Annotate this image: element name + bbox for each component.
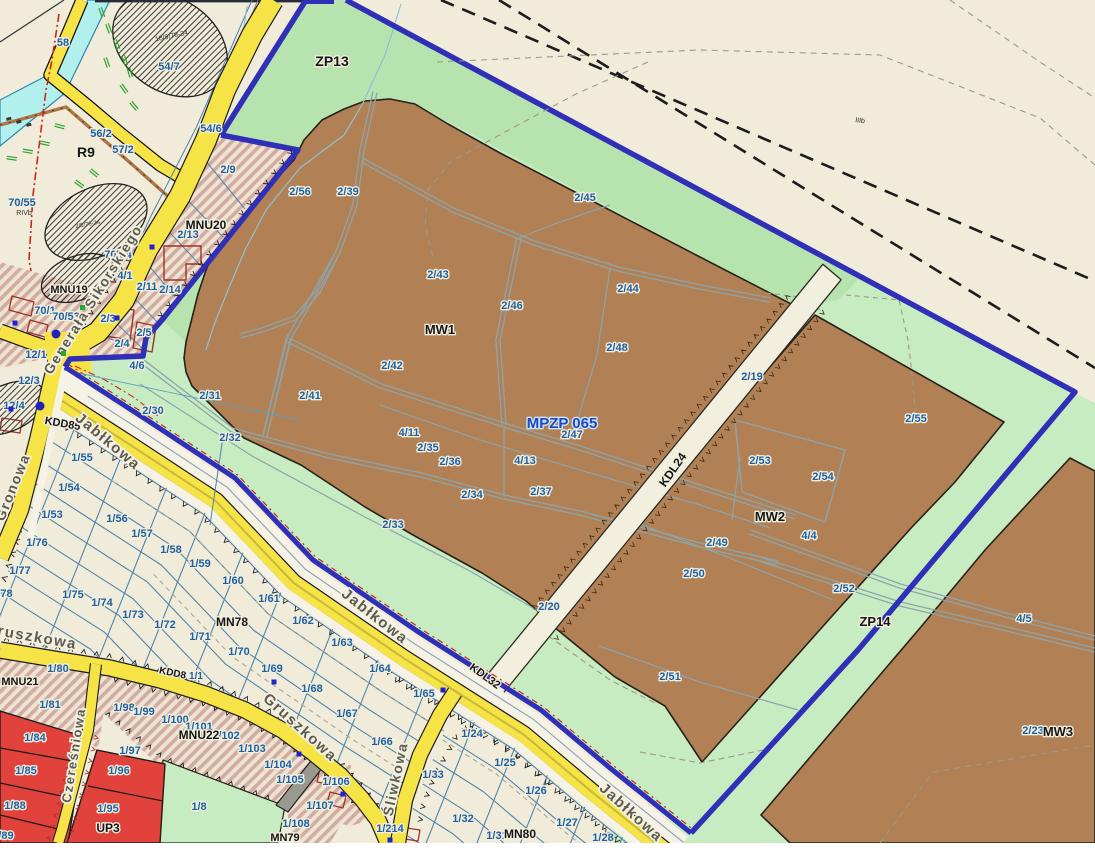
svg-text:4/13: 4/13 xyxy=(514,455,535,467)
svg-text:2/30: 2/30 xyxy=(142,405,163,417)
svg-text:1/105: 1/105 xyxy=(276,774,304,786)
svg-text:2/39: 2/39 xyxy=(337,186,358,198)
svg-text:1/106: 1/106 xyxy=(322,776,350,788)
svg-text:1/104: 1/104 xyxy=(264,759,292,771)
svg-text:2/44: 2/44 xyxy=(617,283,639,295)
svg-text:1/88: 1/88 xyxy=(4,800,25,812)
svg-text:1/69: 1/69 xyxy=(261,663,282,675)
svg-text:1/214: 1/214 xyxy=(376,823,404,835)
svg-text:2/33: 2/33 xyxy=(382,519,403,531)
svg-text:12/4: 12/4 xyxy=(3,400,25,412)
svg-text:58: 58 xyxy=(57,37,69,49)
svg-text:2/3: 2/3 xyxy=(100,313,115,325)
svg-text:70/55: 70/55 xyxy=(8,197,36,209)
svg-text:1/25: 1/25 xyxy=(494,757,515,769)
svg-text:1/97: 1/97 xyxy=(119,745,140,757)
svg-text:1/67: 1/67 xyxy=(336,708,357,720)
svg-text:12/3: 12/3 xyxy=(18,375,39,387)
svg-text:2/48: 2/48 xyxy=(606,342,627,354)
svg-text:12/1: 12/1 xyxy=(25,349,46,361)
svg-text:4/1: 4/1 xyxy=(117,270,132,282)
svg-text:UP3: UP3 xyxy=(96,821,120,835)
svg-text:1/84: 1/84 xyxy=(24,732,46,744)
svg-text:1/56: 1/56 xyxy=(106,513,127,525)
svg-text:1/59: 1/59 xyxy=(189,558,210,570)
svg-text:1/95: 1/95 xyxy=(97,803,118,815)
svg-text:2/53: 2/53 xyxy=(749,455,770,467)
svg-text:IIIb: IIIb xyxy=(855,117,866,125)
svg-text:1/70: 1/70 xyxy=(228,646,249,658)
svg-text:2/56: 2/56 xyxy=(289,186,310,198)
svg-text:1/96: 1/96 xyxy=(108,765,129,777)
svg-text:2/55: 2/55 xyxy=(905,413,926,425)
svg-text:1/68: 1/68 xyxy=(301,683,322,695)
svg-text:4/11: 4/11 xyxy=(399,427,420,439)
svg-text:2/50: 2/50 xyxy=(683,568,704,580)
svg-text:4/6: 4/6 xyxy=(129,360,144,372)
svg-text:2/51: 2/51 xyxy=(659,671,680,683)
svg-text:1/73: 1/73 xyxy=(122,609,143,621)
svg-text:2/52: 2/52 xyxy=(833,583,854,595)
svg-text:2/11: 2/11 xyxy=(137,281,158,293)
svg-text:2/36: 2/36 xyxy=(439,456,460,468)
svg-text:1/64: 1/64 xyxy=(369,663,391,675)
svg-text:1/57: 1/57 xyxy=(131,528,152,540)
svg-text:2/5: 2/5 xyxy=(136,327,151,339)
svg-text:2/9: 2/9 xyxy=(220,164,235,176)
svg-text:1/99: 1/99 xyxy=(133,706,154,718)
svg-text:MNU21: MNU21 xyxy=(1,676,38,688)
svg-text:2/20: 2/20 xyxy=(538,601,559,613)
svg-text:1/98: 1/98 xyxy=(113,702,134,714)
svg-text:ZP14: ZP14 xyxy=(859,614,891,629)
svg-text:1/24: 1/24 xyxy=(461,728,483,740)
svg-text:1/65: 1/65 xyxy=(413,688,434,700)
svg-text:2/49: 2/49 xyxy=(706,537,727,549)
svg-text:1/77: 1/77 xyxy=(9,565,30,577)
svg-text:4/5: 4/5 xyxy=(1016,613,1031,625)
svg-text:MW2: MW2 xyxy=(755,509,785,524)
svg-text:1/8: 1/8 xyxy=(191,801,206,813)
svg-text:1/66: 1/66 xyxy=(371,736,392,748)
svg-text:1/108: 1/108 xyxy=(282,818,310,830)
svg-text:2/32: 2/32 xyxy=(219,432,240,444)
svg-text:1/72: 1/72 xyxy=(154,619,175,631)
svg-text:1/71: 1/71 xyxy=(189,631,210,643)
svg-text:2/23: 2/23 xyxy=(1022,725,1043,737)
svg-text:1/26: 1/26 xyxy=(525,785,546,797)
svg-text:1/80: 1/80 xyxy=(47,663,68,675)
svg-text:2/31: 2/31 xyxy=(199,390,220,402)
svg-text:57/2: 57/2 xyxy=(112,144,133,156)
svg-text:1/1: 1/1 xyxy=(189,671,203,682)
svg-text:1/85: 1/85 xyxy=(15,765,36,777)
svg-text:56/2: 56/2 xyxy=(90,128,111,140)
svg-text:1/61: 1/61 xyxy=(258,593,279,605)
svg-text:2/35: 2/35 xyxy=(417,442,438,454)
svg-text:MNU19: MNU19 xyxy=(50,284,87,296)
svg-text:1/58: 1/58 xyxy=(160,544,181,556)
svg-text:/78: /78 xyxy=(0,588,13,600)
svg-text:2/43: 2/43 xyxy=(427,269,448,281)
svg-text:1/107: 1/107 xyxy=(306,800,334,812)
svg-text:2/42: 2/42 xyxy=(381,360,402,372)
svg-text:1/54: 1/54 xyxy=(58,482,80,494)
svg-text:1/33: 1/33 xyxy=(422,769,443,781)
svg-text:MPZP 065: MPZP 065 xyxy=(527,415,598,432)
svg-text:1/60: 1/60 xyxy=(222,575,243,587)
svg-text:54/7: 54/7 xyxy=(158,61,179,73)
svg-text:MW1: MW1 xyxy=(425,322,455,337)
svg-text:MW3: MW3 xyxy=(1043,724,1073,739)
svg-text:54/6: 54/6 xyxy=(200,123,221,135)
svg-text:4/4: 4/4 xyxy=(801,530,817,542)
svg-text:2/41: 2/41 xyxy=(299,390,320,402)
svg-text:1/74: 1/74 xyxy=(91,597,113,609)
svg-text:MN78: MN78 xyxy=(216,615,248,629)
svg-text:/89: /89 xyxy=(0,830,14,842)
svg-text:MN79: MN79 xyxy=(270,832,299,843)
svg-text:2/19: 2/19 xyxy=(741,371,762,383)
svg-text:ZP13: ZP13 xyxy=(315,53,349,69)
svg-text:1/28: 1/28 xyxy=(592,832,613,843)
svg-text:1/81: 1/81 xyxy=(39,699,60,711)
svg-text:MN80: MN80 xyxy=(504,827,536,841)
svg-text:RIVb: RIVb xyxy=(16,210,32,217)
svg-text:1/63: 1/63 xyxy=(331,637,352,649)
svg-text:1/55: 1/55 xyxy=(71,452,92,464)
svg-text:1/75: 1/75 xyxy=(62,589,83,601)
svg-text:1/62: 1/62 xyxy=(292,615,313,627)
svg-text:2/54: 2/54 xyxy=(812,471,834,483)
svg-text:2/37: 2/37 xyxy=(530,486,551,498)
svg-text:2/46: 2/46 xyxy=(501,300,522,312)
svg-text:1/32: 1/32 xyxy=(452,813,473,825)
svg-text:2/14: 2/14 xyxy=(159,284,181,296)
svg-text:MNU20: MNU20 xyxy=(186,218,227,232)
svg-text:2/45: 2/45 xyxy=(574,192,595,204)
svg-text:1/27: 1/27 xyxy=(556,817,577,829)
svg-text:1/103: 1/103 xyxy=(238,743,266,755)
svg-text:2/4: 2/4 xyxy=(114,338,130,350)
svg-text:2/34: 2/34 xyxy=(461,489,483,501)
svg-text:R9: R9 xyxy=(77,144,95,160)
svg-text:MNU22: MNU22 xyxy=(179,728,220,742)
svg-text:1/76: 1/76 xyxy=(26,537,47,549)
svg-text:1/53: 1/53 xyxy=(41,509,62,521)
